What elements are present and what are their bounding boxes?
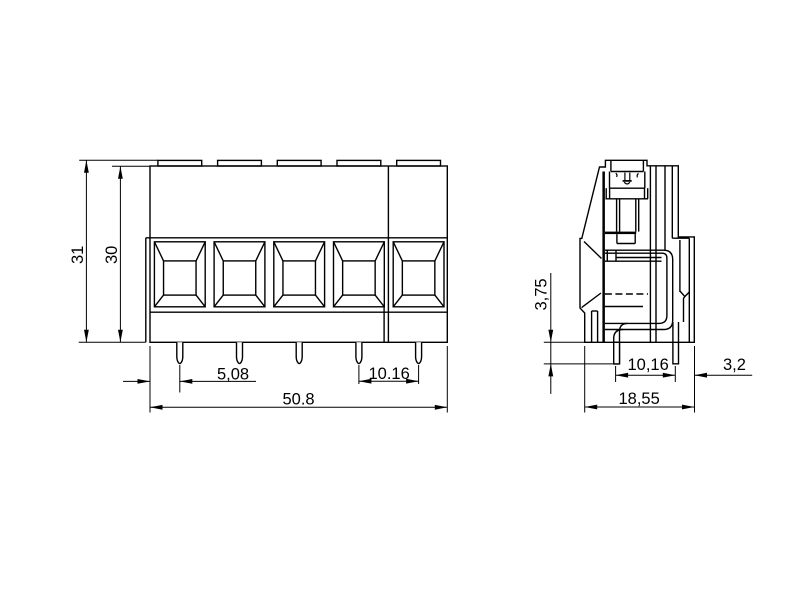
svg-text:10,16: 10,16 bbox=[628, 356, 669, 374]
svg-text:3,75: 3,75 bbox=[533, 278, 551, 310]
svg-text:10.16: 10.16 bbox=[369, 365, 410, 383]
svg-text:30: 30 bbox=[103, 246, 121, 264]
svg-text:18,55: 18,55 bbox=[619, 390, 660, 408]
svg-text:3,2: 3,2 bbox=[723, 356, 746, 374]
svg-text:5,08: 5,08 bbox=[217, 366, 249, 384]
svg-text:50.8: 50.8 bbox=[283, 391, 315, 409]
svg-text:31: 31 bbox=[69, 246, 87, 264]
